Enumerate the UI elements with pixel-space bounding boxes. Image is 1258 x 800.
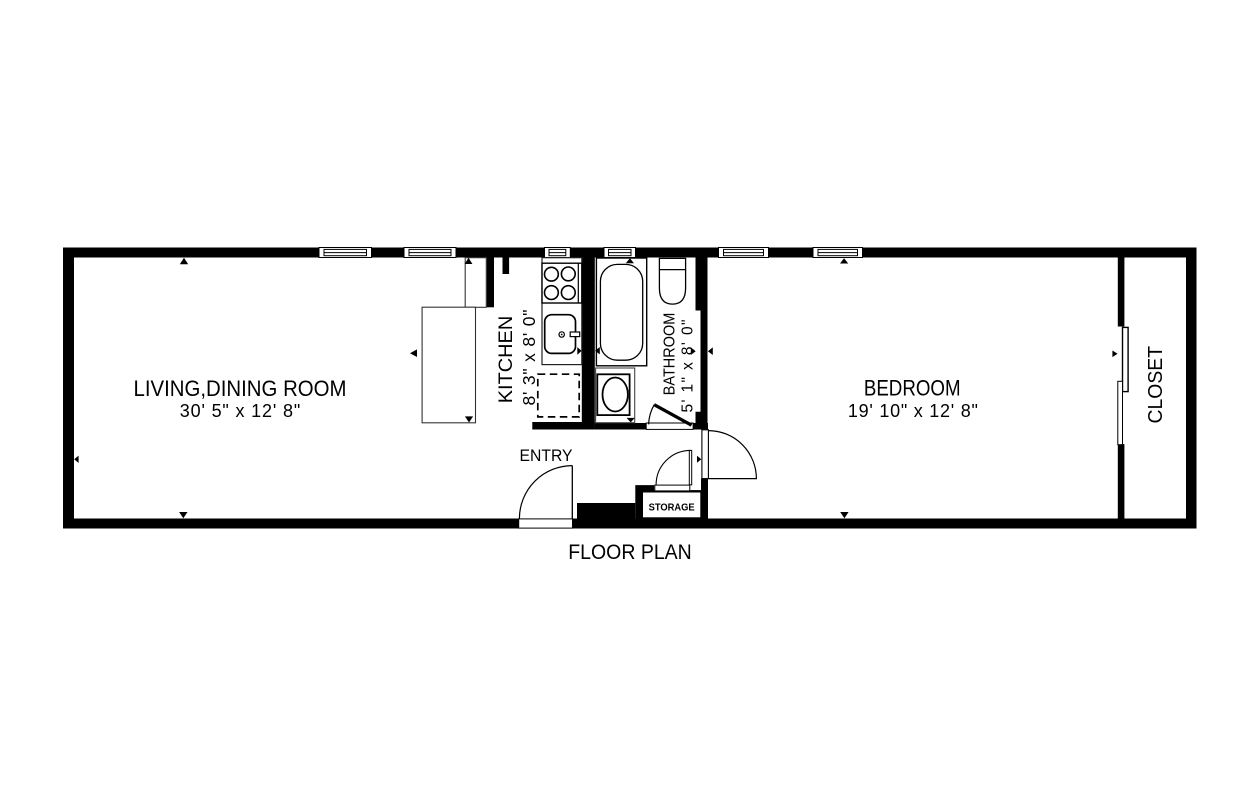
svg-text:19' 10" x 12' 8": 19' 10" x 12' 8" — [848, 401, 978, 421]
svg-text:CLOSET: CLOSET — [1144, 346, 1167, 424]
svg-text:KITCHEN: KITCHEN — [496, 316, 517, 404]
svg-text:30' 5" x 12' 8": 30' 5" x 12' 8" — [180, 401, 301, 421]
svg-text:5' 1" x 8' 0": 5' 1" x 8' 0" — [679, 320, 696, 413]
svg-text:FLOOR PLAN: FLOOR PLAN — [568, 540, 692, 564]
svg-text:STORAGE: STORAGE — [649, 502, 696, 513]
svg-text:BEDROOM: BEDROOM — [864, 376, 961, 401]
svg-text:BATHROOM: BATHROOM — [662, 313, 679, 396]
svg-text:LIVING,DINING ROOM: LIVING,DINING ROOM — [134, 376, 347, 401]
svg-text:8' 3" x 8' 0": 8' 3" x 8' 0" — [519, 310, 539, 406]
svg-text:ENTRY: ENTRY — [520, 447, 573, 465]
